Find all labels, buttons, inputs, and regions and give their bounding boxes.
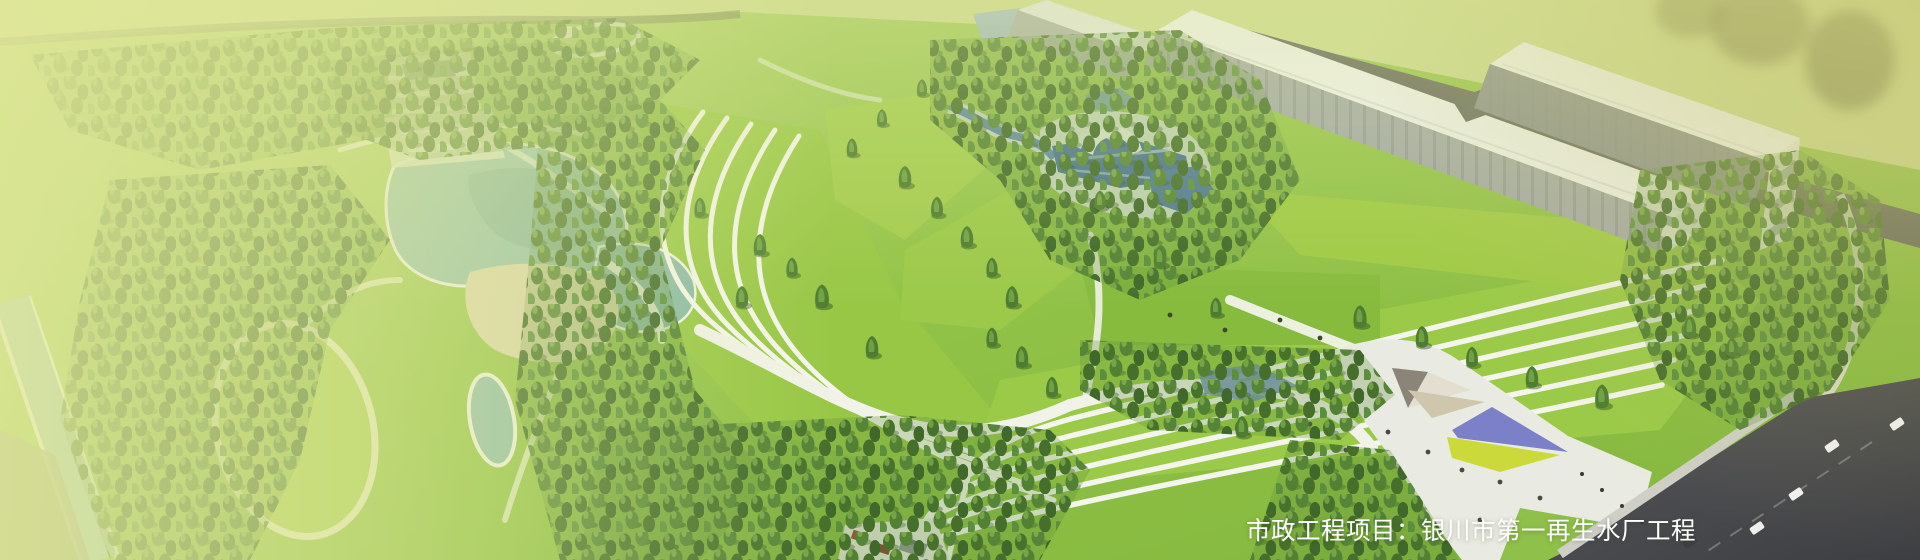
hero-banner: 市政工程项目：银川市第一再生水厂工程 — [0, 0, 1920, 560]
project-caption: 市政工程项目：银川市第一再生水厂工程 — [1246, 517, 1696, 547]
wash-overlay — [0, 0, 1920, 560]
aerial-site-rendering — [0, 0, 1920, 560]
